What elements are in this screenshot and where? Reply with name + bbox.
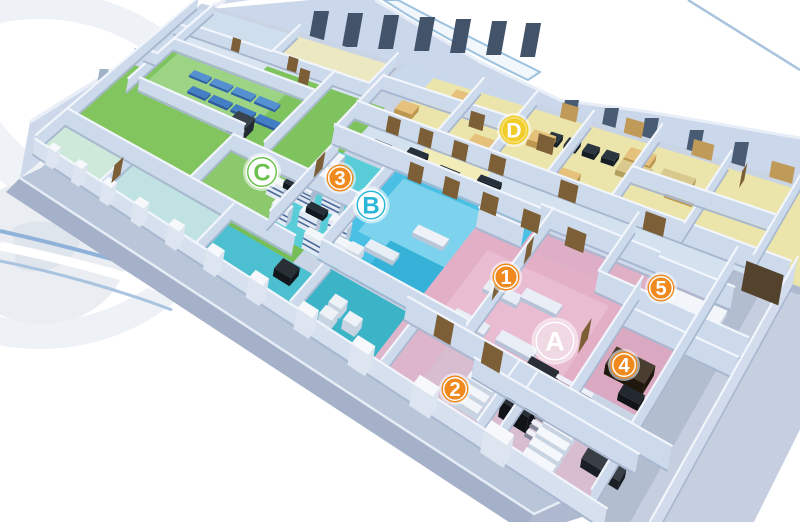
svg-text:1: 1 xyxy=(500,267,511,289)
svg-text:D: D xyxy=(506,120,521,143)
svg-text:3: 3 xyxy=(334,168,345,190)
svg-text:B: B xyxy=(362,193,379,220)
svg-text:4: 4 xyxy=(618,355,630,377)
svg-text:A: A xyxy=(545,327,565,357)
svg-text:5: 5 xyxy=(655,278,666,300)
svg-text:2: 2 xyxy=(449,379,460,401)
svg-text:C: C xyxy=(253,160,270,187)
